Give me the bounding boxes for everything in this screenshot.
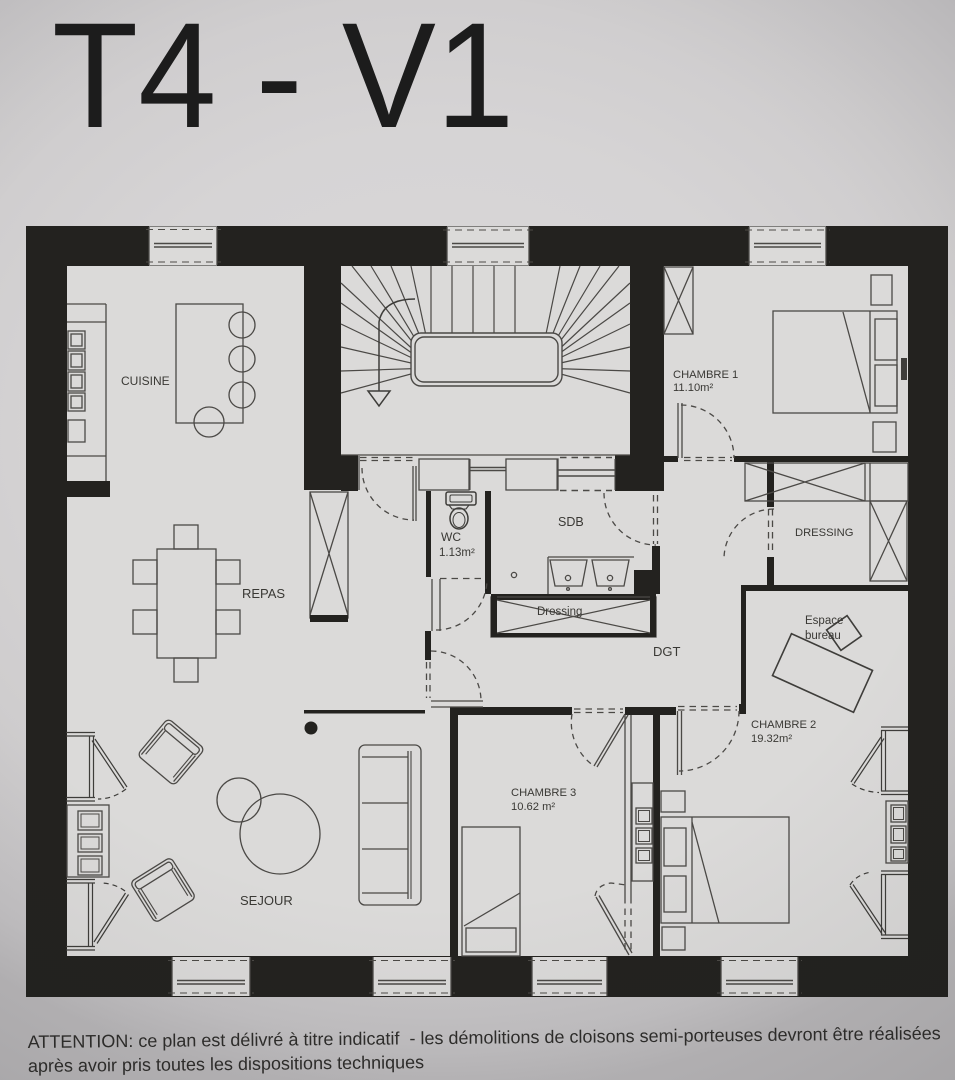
svg-text:DRESSING: DRESSING [795,527,853,539]
svg-text:REPAS: REPAS [242,586,285,601]
svg-text:CHAMBRE 3: CHAMBRE 3 [511,787,576,799]
svg-text:WC: WC [441,530,461,544]
svg-text:Dressing: Dressing [537,606,582,618]
svg-text:SEJOUR: SEJOUR [240,893,293,908]
svg-text:Espace: Espace [805,615,843,627]
svg-text:CHAMBRE 1: CHAMBRE 1 [673,369,738,381]
svg-text:1.13m²: 1.13m² [439,547,475,559]
svg-text:SDB: SDB [558,515,584,529]
svg-text:bureau: bureau [805,630,841,642]
svg-text:DGT: DGT [653,644,681,659]
svg-text:10.62 m²: 10.62 m² [511,801,555,813]
svg-text:19.32m²: 19.32m² [751,733,792,745]
svg-text:CUISINE: CUISINE [121,374,170,388]
svg-text:11.10m²: 11.10m² [673,382,713,394]
svg-text:CHAMBRE 2: CHAMBRE 2 [751,719,816,731]
